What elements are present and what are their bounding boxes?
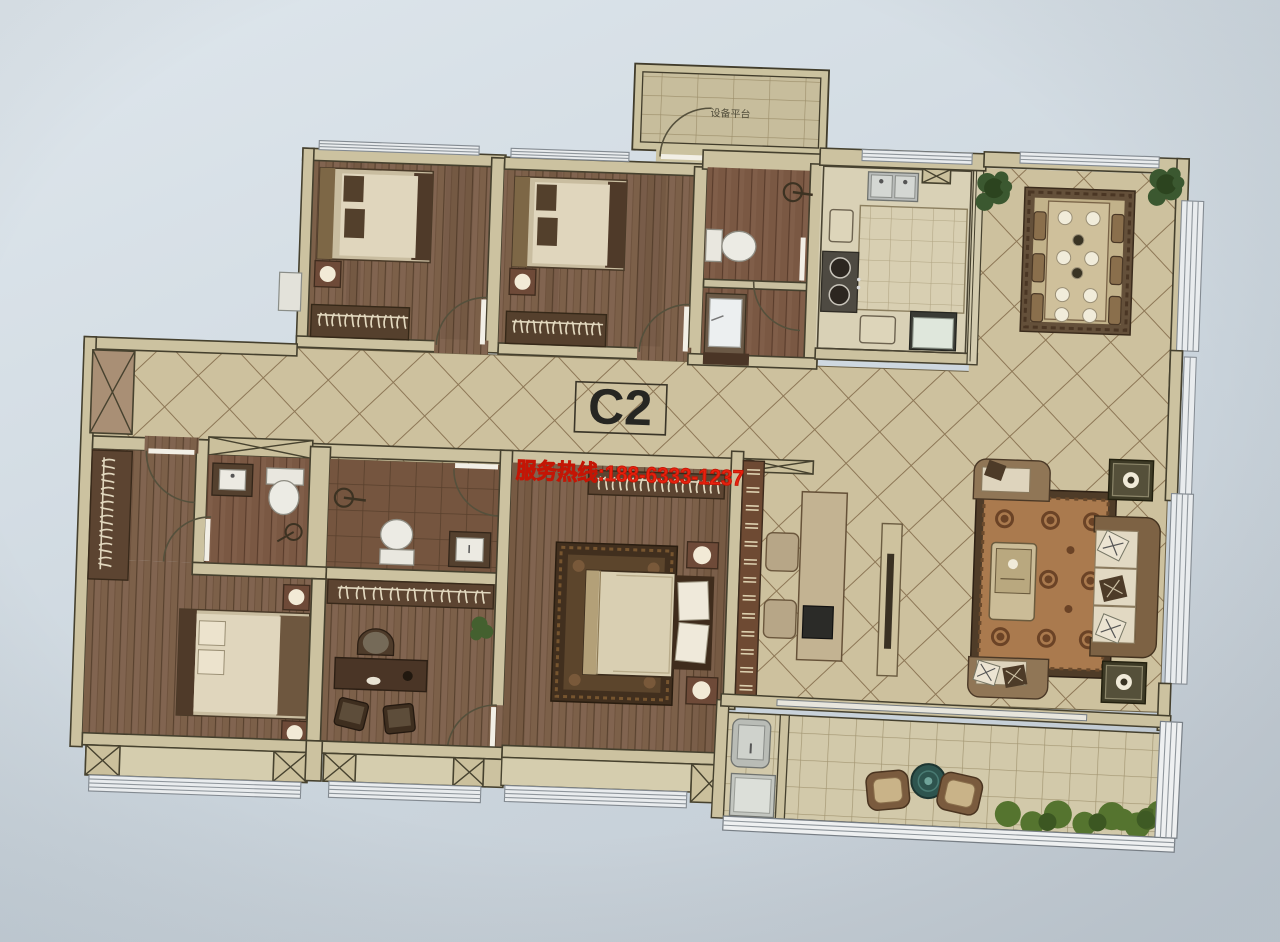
svg-text:C2: C2 — [587, 378, 653, 436]
